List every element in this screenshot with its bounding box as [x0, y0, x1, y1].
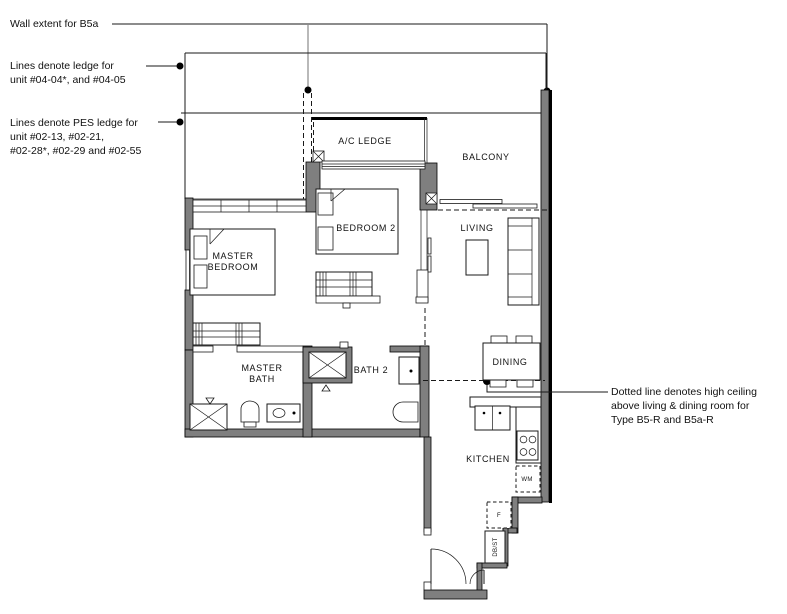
pes-note-line1: Lines denote PES ledge for	[10, 117, 138, 129]
wall-extent-dot	[305, 87, 312, 94]
acledge-grille	[322, 161, 425, 169]
bedroom2-furniture	[316, 189, 398, 308]
washing-machine-label: WM	[521, 477, 532, 483]
balcony-label: BALCONY	[462, 152, 509, 162]
master-bath-shower	[190, 398, 227, 430]
master-bath-label-line1: MASTER	[241, 363, 282, 373]
wall-entry-bottom	[424, 590, 487, 599]
door-frame-bottom	[424, 582, 431, 590]
ledge-note-dot	[177, 63, 184, 70]
high-ceiling-note-line1: Dotted line denotes high ceiling	[611, 386, 757, 398]
coffee-table	[466, 240, 488, 275]
bedroom2-pillow2	[318, 227, 333, 250]
high-ceiling-note-line3: Type B5-R and B5a-R	[611, 414, 714, 426]
masterbath-top-wall-a	[193, 346, 213, 352]
pes-note-dot	[177, 119, 184, 126]
balcony-slider-panel2	[473, 204, 537, 208]
bedroom2-door-stop	[416, 297, 428, 303]
bedroom2-lower-wall-tab	[343, 303, 350, 308]
wall-extent-note: Wall extent for B5a	[10, 18, 98, 30]
entrance-door	[431, 549, 484, 584]
ledge-note-line1: Lines denote ledge for	[10, 60, 114, 72]
db-store-label: DB/ST	[493, 537, 499, 556]
dining-label: DINING	[492, 357, 527, 367]
balcony-slider-panel1	[440, 200, 502, 204]
master-bedroom-furniture	[190, 229, 275, 345]
bedroom2-lower-wall	[316, 296, 380, 303]
floor-plan-page: A/C LEDGE BALCONY LIVING DINING KITCHEN …	[0, 0, 787, 614]
reference-lines	[112, 24, 551, 199]
wall-right-main	[541, 90, 549, 502]
bedroom2-wardrobe	[316, 272, 372, 296]
wall-bath2-right	[420, 346, 429, 437]
master-bedroom-label-line1: MASTER	[212, 251, 253, 261]
wall-step1-v	[512, 497, 518, 533]
master-bath-label-line2: BATH	[249, 374, 275, 384]
ledge-note-line2: unit #04-04*, and #04-05	[10, 74, 126, 86]
balcony-pier-unit-box	[426, 193, 437, 204]
bath2-label: BATH 2	[354, 365, 388, 375]
tv-console-a	[428, 238, 431, 254]
pes-note-line2: unit #02-13, #02-21,	[10, 131, 104, 143]
master-bedroom-window	[193, 200, 306, 212]
kitchen-label: KITCHEN	[466, 454, 510, 464]
living-label: LIVING	[460, 223, 493, 233]
wall-kitchen-left	[424, 437, 431, 532]
acledge-top-wall	[312, 117, 427, 120]
wall-step3-v	[477, 563, 482, 592]
pes-note-line3: #02-28*, #02-29 and #02-55	[10, 145, 142, 157]
acledge-unit-box	[313, 151, 324, 162]
master-bedroom-label-line2: BEDROOM	[208, 262, 259, 272]
master-bath-vanity	[267, 404, 300, 422]
master-wardrobe	[193, 323, 260, 345]
ac-ledge-label: A/C LEDGE	[338, 136, 391, 146]
bath2-toilet	[393, 402, 418, 422]
kitchen-hob	[517, 431, 538, 460]
wall-right-edge	[549, 90, 552, 503]
masterbath-top-wall-b	[237, 346, 303, 352]
bath2-fixtures	[303, 342, 419, 422]
master-bed-pillow1	[194, 236, 207, 259]
door-frame-top	[424, 528, 431, 535]
fridge-label: F	[497, 513, 501, 519]
high-ceiling-note-line2: above living & dining room for	[611, 400, 750, 412]
floor-plan-drawing: A/C LEDGE BALCONY LIVING DINING KITCHEN …	[0, 0, 787, 614]
entrance-door-swing	[431, 549, 466, 584]
bedroom2-label: BEDROOM 2	[336, 223, 395, 233]
sofa	[508, 218, 539, 305]
bath2-vanity	[399, 357, 419, 384]
master-bath-toilet	[241, 401, 259, 427]
wall-left-mid	[185, 290, 193, 350]
kitchen-sink	[475, 406, 510, 430]
master-bed-pillow2	[194, 265, 207, 288]
tv-console-b	[428, 256, 431, 272]
master-bath-fixtures	[190, 398, 300, 430]
